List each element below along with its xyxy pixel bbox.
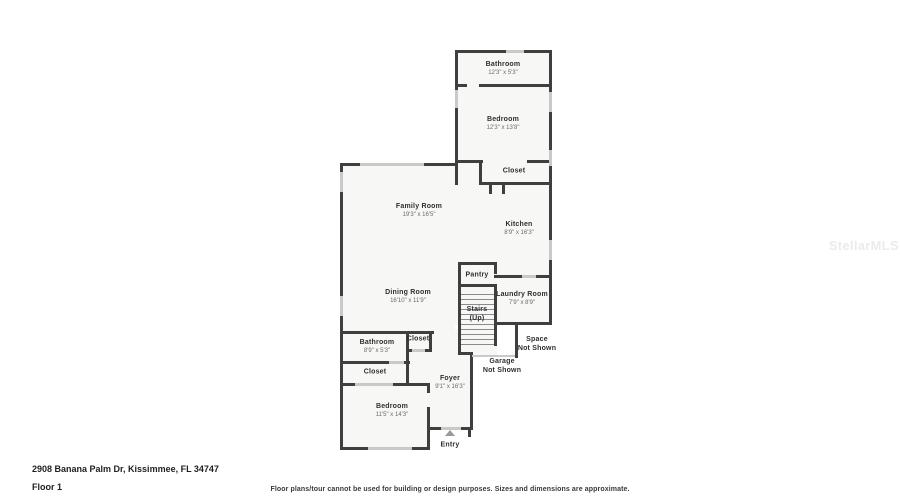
wall-segment bbox=[502, 185, 505, 194]
wall-segment bbox=[479, 160, 482, 185]
window-segment bbox=[549, 92, 552, 112]
window-segment bbox=[340, 296, 343, 316]
wall-segment bbox=[515, 322, 518, 358]
wall-segment bbox=[494, 322, 552, 325]
wall-segment bbox=[458, 284, 497, 287]
wall-segment bbox=[479, 84, 552, 87]
wall-segment bbox=[455, 50, 458, 185]
room-area bbox=[340, 383, 430, 450]
window-segment bbox=[522, 275, 536, 278]
room-label-garage-not-shown: Garage Not Shown bbox=[483, 357, 521, 375]
room-area bbox=[340, 163, 455, 385]
window-segment bbox=[355, 383, 393, 386]
window-segment bbox=[549, 240, 552, 260]
window-segment bbox=[549, 150, 552, 166]
wall-segment bbox=[489, 185, 492, 194]
room-name: Garage Not Shown bbox=[483, 357, 521, 375]
wall-segment bbox=[406, 349, 409, 386]
wall-segment bbox=[455, 50, 552, 53]
floor-plan: 2908 Banana Palm Dr, Kissimmee, FL 34747… bbox=[0, 0, 900, 500]
wall-segment bbox=[406, 331, 409, 352]
wall-segment bbox=[340, 331, 434, 334]
wall-segment bbox=[455, 160, 483, 163]
property-address: 2908 Banana Palm Dr, Kissimmee, FL 34747 bbox=[32, 464, 219, 474]
entry-arrow-icon bbox=[445, 430, 455, 436]
room-name: Entry bbox=[441, 440, 460, 449]
window-segment bbox=[368, 447, 412, 450]
window-segment bbox=[360, 163, 424, 166]
wall-segment bbox=[479, 182, 552, 185]
window-segment bbox=[389, 361, 404, 364]
window-segment bbox=[455, 90, 458, 108]
window-segment bbox=[472, 355, 515, 357]
stellar-mls-watermark: StellarMLS bbox=[829, 238, 899, 253]
window-segment bbox=[340, 172, 343, 192]
wall-segment bbox=[494, 284, 497, 346]
room-label-entry: Entry bbox=[441, 440, 460, 449]
stairs-treads bbox=[461, 290, 494, 348]
room-area bbox=[455, 50, 552, 185]
wall-segment bbox=[470, 352, 473, 430]
window-segment bbox=[506, 50, 524, 53]
window-segment bbox=[412, 349, 425, 352]
room-label-space-not-shown: Space Not Shown bbox=[518, 335, 556, 353]
disclaimer-text: Floor plans/tour cannot be used for buil… bbox=[0, 486, 900, 493]
room-name: Space Not Shown bbox=[518, 335, 556, 353]
wall-segment bbox=[427, 407, 430, 450]
wall-segment bbox=[458, 262, 497, 265]
